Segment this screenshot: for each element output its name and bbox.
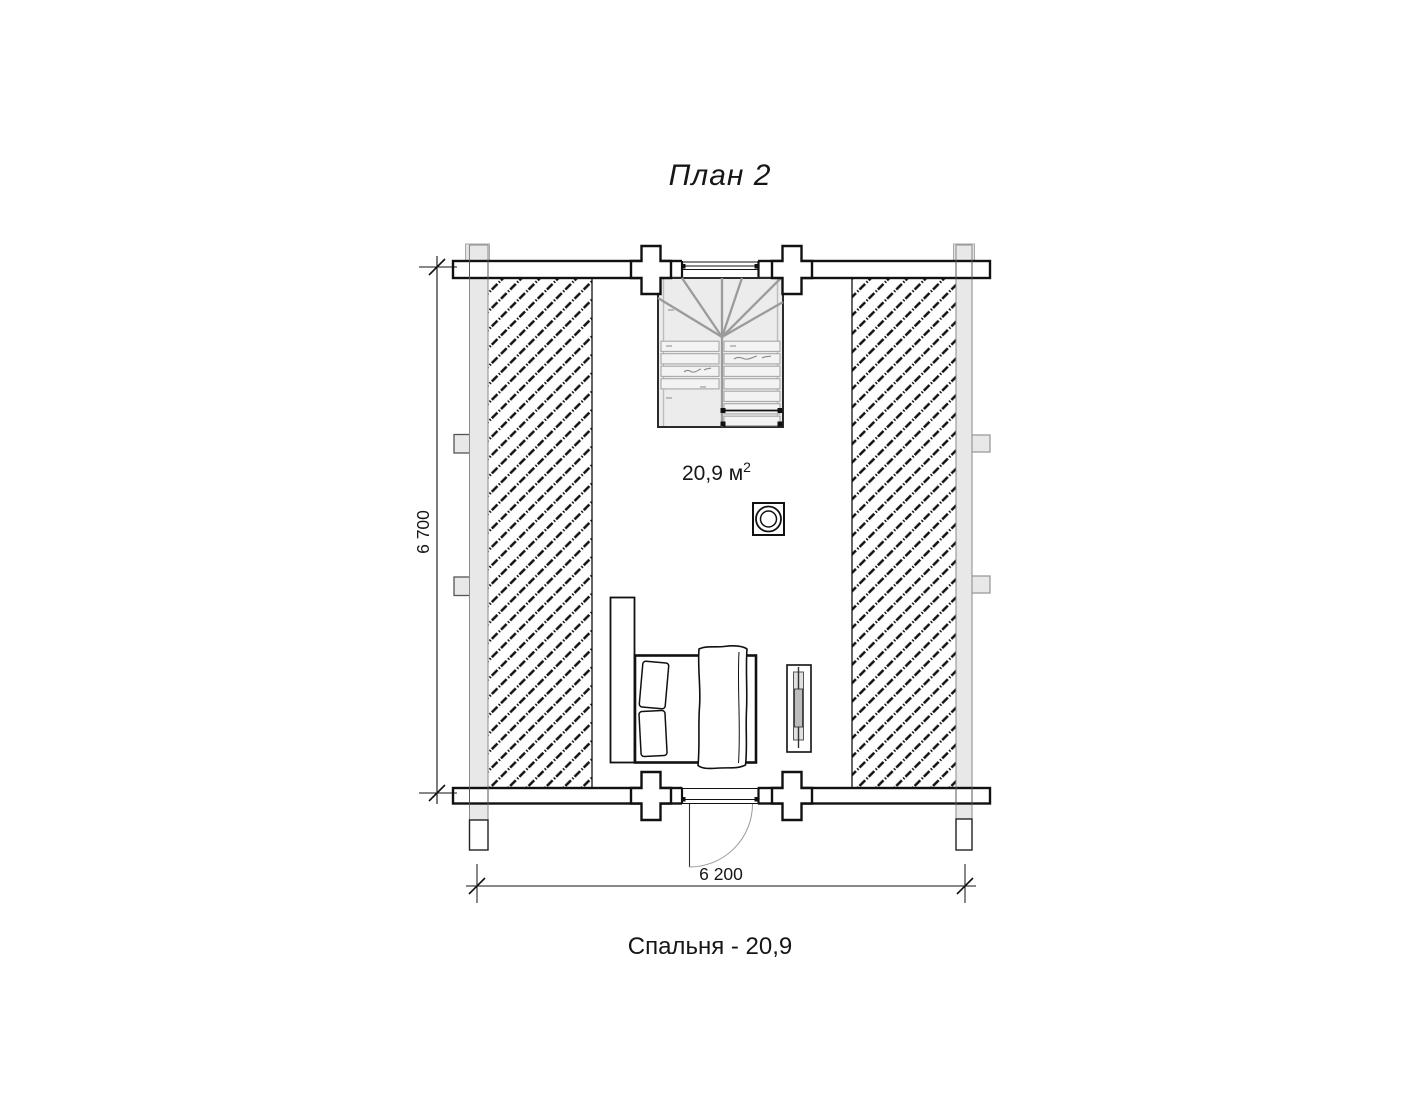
hatch-zone-right (852, 278, 958, 788)
hatch-zone-left (488, 278, 592, 788)
area-superscript: 2 (743, 459, 751, 475)
area-value: 20,9 м (682, 462, 743, 485)
radiator (787, 665, 811, 752)
door (681, 786, 759, 867)
floor-plan-page: План 2 (0, 0, 1422, 1100)
chimney (753, 503, 784, 535)
dim-width-label: 6 200 (699, 864, 743, 884)
blanket (698, 646, 747, 769)
plan-caption: Спальня - 20,9 (628, 933, 792, 961)
dim-height-label: 6 700 (413, 510, 433, 554)
log-wall-right (954, 244, 991, 850)
door-swing-arc (690, 804, 753, 867)
area-label: 20,9 м2 (682, 459, 751, 485)
bed (611, 598, 757, 769)
log-wall-left (454, 244, 490, 850)
staircase (658, 278, 783, 427)
stair-treads-right (724, 341, 780, 426)
window (681, 260, 759, 280)
bed-headboard (611, 598, 635, 763)
